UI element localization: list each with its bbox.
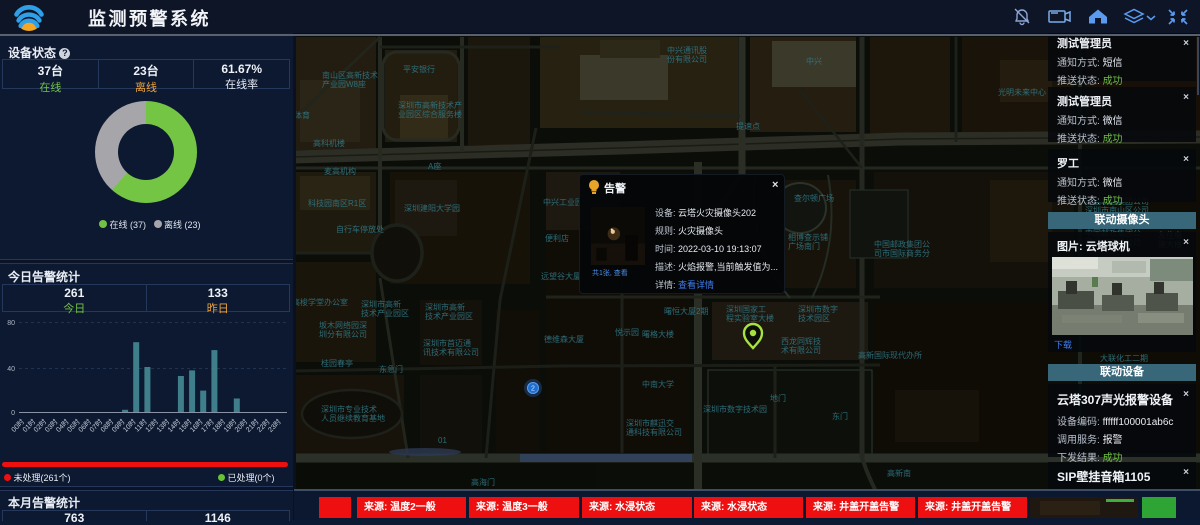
svg-text:光明未来中心: 光明未来中心: [998, 87, 1046, 97]
svg-text:麦高机构: 麦高机构: [324, 166, 356, 176]
svg-text:提速点: 提速点: [736, 121, 760, 131]
svg-text:深圳国家工: 深圳国家工: [726, 304, 766, 314]
svg-text:西龙同辉技: 西龙同辉技: [781, 336, 821, 346]
svg-text:份有限公司: 份有限公司: [667, 54, 707, 64]
svg-text:80: 80: [7, 320, 15, 327]
svg-text:远望谷大厦: 远望谷大厦: [541, 271, 581, 281]
svg-text:便利店: 便利店: [545, 233, 569, 243]
svg-text:高新国际现代办所: 高新国际现代办所: [858, 350, 922, 360]
svg-text:通科技有限公司: 通科技有限公司: [626, 427, 682, 437]
svg-text:术有限公司: 术有限公司: [781, 345, 821, 355]
svg-text:德维森大厦: 德维森大厦: [544, 334, 584, 344]
svg-text:技术产业园区: 技术产业园区: [425, 311, 473, 321]
svg-text:高海门: 高海门: [471, 477, 495, 487]
svg-text:讯技术有限公司: 讯技术有限公司: [423, 347, 479, 357]
svg-text:深圳市数字技术园: 深圳市数字技术园: [703, 404, 767, 414]
svg-text:大联化工二期: 大联化工二期: [1100, 353, 1148, 363]
svg-text:自行车停放处: 自行车停放处: [336, 224, 384, 234]
svg-text:中南大学: 中南大学: [642, 379, 674, 389]
svg-text:深圳市高新技术产: 深圳市高新技术产: [398, 100, 462, 110]
svg-text:南山区高新技术: 南山区高新技术: [322, 70, 378, 80]
svg-text:技术产业园区: 技术产业园区: [361, 308, 409, 318]
svg-text:悦示园: 悦示园: [615, 327, 639, 337]
svg-text:40: 40: [7, 366, 15, 373]
svg-text:中兴: 中兴: [806, 56, 822, 66]
svg-text:高梭学堂办公室: 高梭学堂办公室: [293, 297, 348, 307]
svg-text:东门: 东门: [832, 411, 848, 421]
svg-text:相博查示铺: 相博查示铺: [788, 232, 828, 242]
svg-text:科技园南区R1区: 科技园南区R1区: [308, 198, 366, 208]
svg-text:中兴工业园: 中兴工业园: [543, 197, 583, 207]
svg-text:技术园区: 技术园区: [798, 313, 830, 323]
svg-text:深圳建阳大学园: 深圳建阳大学园: [404, 203, 460, 213]
svg-text:人员继续教育基地: 人员继续教育基地: [321, 413, 385, 423]
svg-text:司市国际商务分: 司市国际商务分: [874, 248, 930, 258]
svg-text:深圳市首迈通: 深圳市首迈通: [423, 338, 471, 348]
svg-text:地门: 地门: [770, 393, 786, 403]
svg-text:01: 01: [438, 436, 447, 445]
svg-text:2: 2: [531, 386, 535, 393]
svg-text:A座: A座: [428, 161, 441, 171]
svg-text:深圳市高新: 深圳市高新: [361, 299, 401, 309]
svg-text:曙恒大厦2期: 曙恒大厦2期: [664, 306, 708, 316]
svg-text:深圳市麒迅交: 深圳市麒迅交: [626, 418, 674, 428]
svg-text:曙格大楼: 曙格大楼: [642, 329, 674, 339]
svg-text:中兴通讯股: 中兴通讯股: [667, 45, 707, 55]
svg-text:0: 0: [11, 410, 15, 417]
svg-text:查尔顿广场: 查尔顿广场: [794, 193, 834, 203]
svg-text:平安银行: 平安银行: [403, 64, 435, 74]
svg-text:桂园春亭: 桂园春亭: [321, 358, 353, 368]
svg-text:圳分有限公司: 圳分有限公司: [319, 329, 367, 339]
svg-text:深圳市专业技术: 深圳市专业技术: [321, 404, 377, 414]
svg-text:深圳市高新: 深圳市高新: [425, 302, 465, 312]
svg-text:高科机楼: 高科机楼: [313, 138, 345, 148]
svg-text:中国邮政集团公: 中国邮政集团公: [874, 239, 930, 249]
svg-text:程实验室大楼: 程实验室大楼: [726, 313, 774, 323]
svg-text:广场南门: 广场南门: [788, 241, 820, 251]
svg-text:高新南: 高新南: [887, 468, 911, 478]
svg-text:深圳市数字: 深圳市数字: [798, 304, 838, 314]
svg-text:产业园W8座: 产业园W8座: [322, 79, 366, 89]
svg-text:东急门: 东急门: [379, 364, 403, 374]
svg-text:坂木网络园深: 坂木网络园深: [319, 320, 367, 330]
svg-text:体育: 体育: [294, 110, 310, 120]
svg-text:业园区综合服务楼: 业园区综合服务楼: [398, 109, 462, 119]
